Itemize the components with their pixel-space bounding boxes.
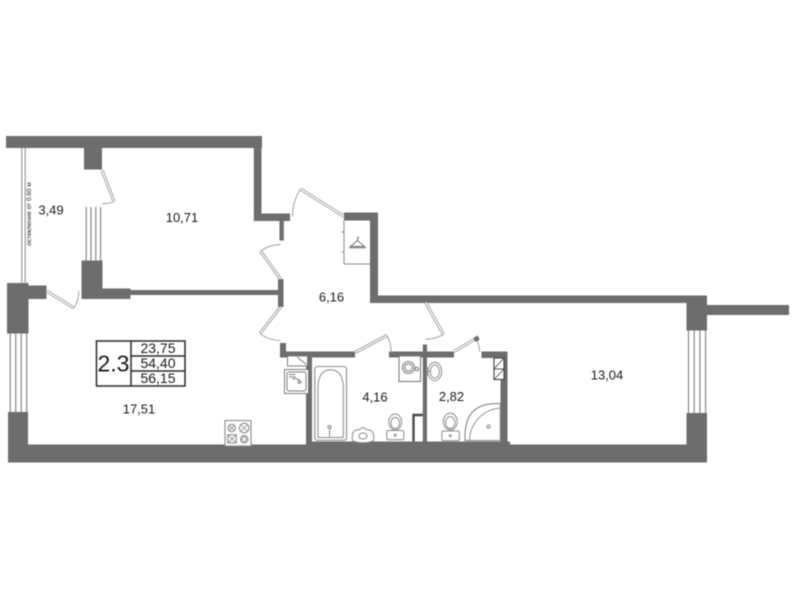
svg-text:остекление от 0.60 м: остекление от 0.60 м — [26, 182, 33, 246]
svg-text:2.3: 2.3 — [98, 351, 130, 377]
svg-text:6,16: 6,16 — [319, 290, 344, 305]
svg-text:3,49: 3,49 — [38, 203, 63, 218]
svg-text:17,51: 17,51 — [123, 402, 156, 417]
svg-text:2,82: 2,82 — [439, 389, 464, 404]
svg-text:56,15: 56,15 — [140, 370, 175, 386]
svg-text:23,75: 23,75 — [140, 340, 175, 356]
svg-text:13,04: 13,04 — [591, 368, 624, 383]
svg-text:10,71: 10,71 — [166, 210, 199, 225]
svg-text:4,16: 4,16 — [362, 390, 387, 405]
svg-text:54,40: 54,40 — [140, 355, 175, 371]
